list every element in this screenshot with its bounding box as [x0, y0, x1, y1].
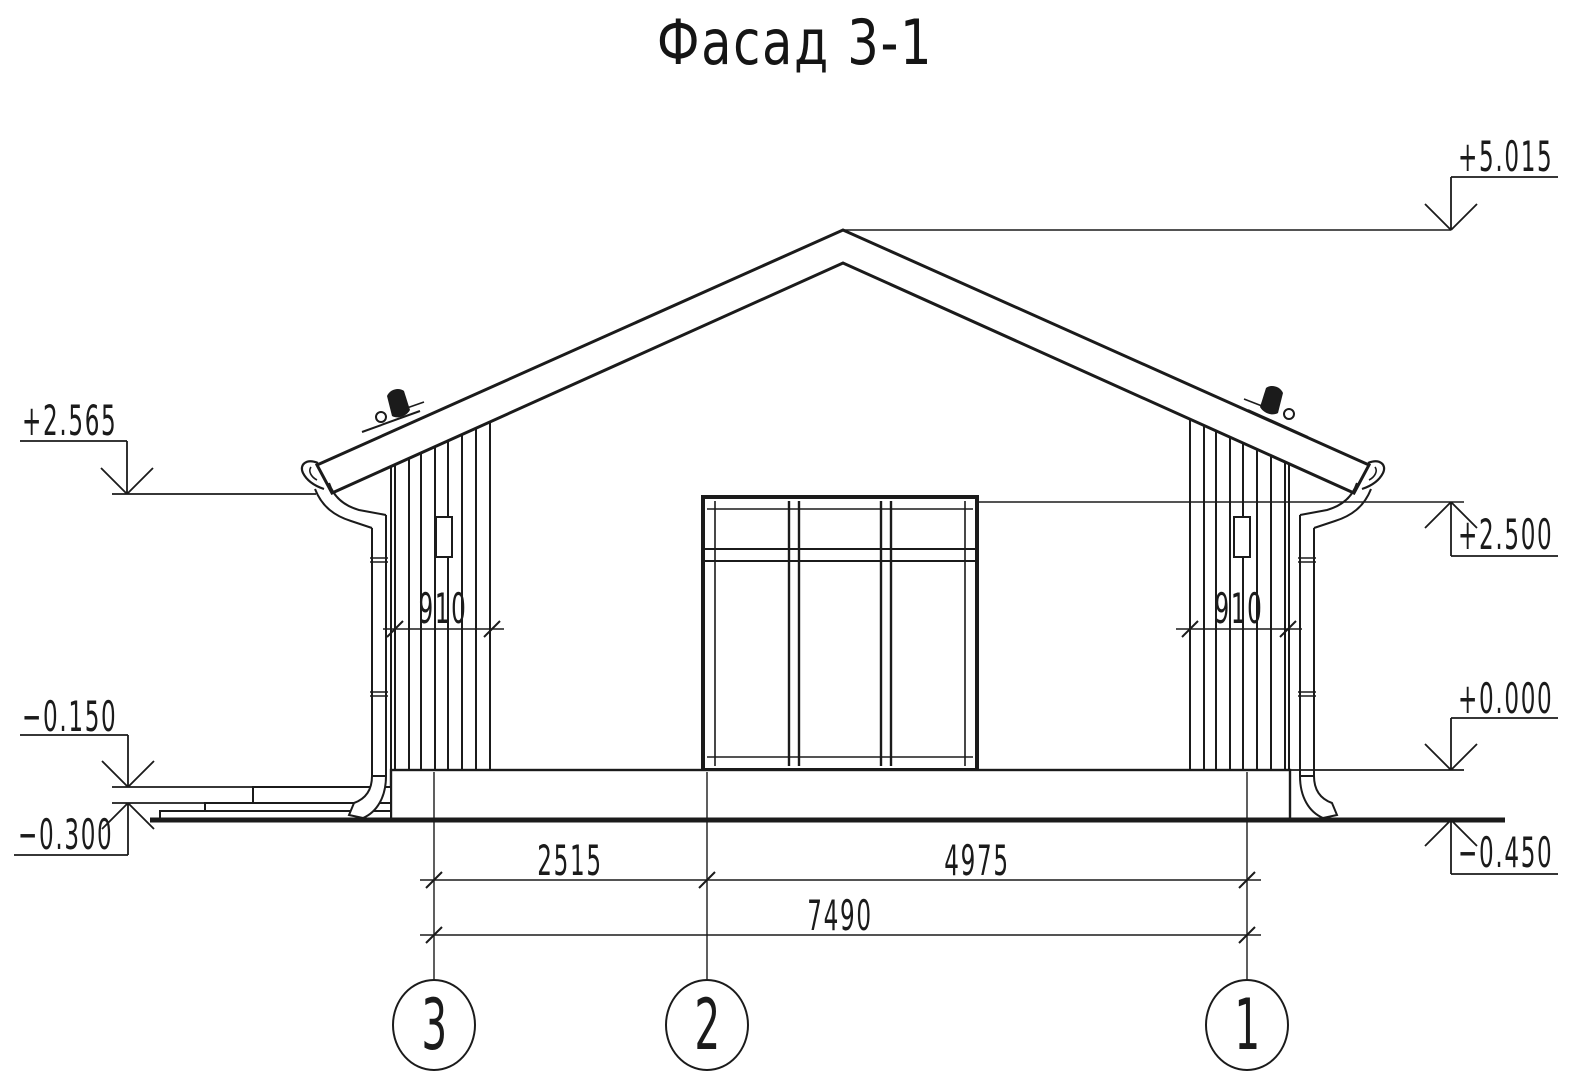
axis-bubble-2: 2	[665, 979, 749, 1071]
plinth	[391, 770, 1290, 820]
facade-linework	[0, 0, 1590, 1080]
axis-bubble-2-label: 2	[694, 990, 720, 1060]
window	[703, 497, 977, 770]
elevation-label-right-grade: −0.450	[1458, 832, 1553, 874]
drawing-title: Фасад 3-1	[159, 12, 1431, 74]
dimension-label-overall: 7490	[796, 895, 884, 937]
elevation-label-left-eave: +2.565	[22, 400, 117, 442]
axis-bubble-3-label: 3	[421, 990, 447, 1060]
axis-bubble-1: 1	[1205, 979, 1289, 1071]
downspout-left	[315, 483, 388, 818]
elevation-label-porch: −0.150	[22, 696, 117, 738]
facade-drawing-sheet: Фасад 3-1 +5.015 +2.565 +2.500 +0.000 −0…	[0, 0, 1590, 1080]
dimension-label-axis-3-2: 2515	[526, 840, 614, 882]
downspout-right	[1298, 483, 1371, 818]
roof	[317, 230, 1369, 493]
elevation-label-left-grade: −0.300	[18, 814, 113, 856]
axis-bubble-3: 3	[392, 979, 476, 1071]
elevation-label-lintel: +2.500	[1458, 514, 1553, 556]
axis-bubble-1-label: 1	[1234, 990, 1260, 1060]
dimension-label-axis-2-1: 4975	[933, 840, 1021, 882]
dimension-label-right-siding: 910	[1195, 588, 1283, 630]
dimension-label-left-siding: 910	[399, 588, 487, 630]
elevation-label-floor-zero: +0.000	[1458, 678, 1553, 720]
elevation-label-roof-peak: +5.015	[1458, 136, 1553, 178]
